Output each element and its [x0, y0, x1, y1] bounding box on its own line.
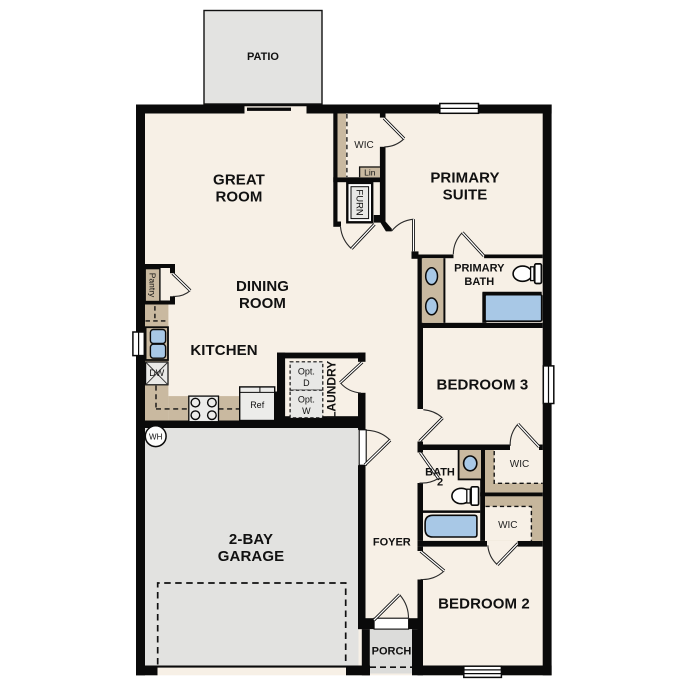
svg-text:Ref: Ref [250, 400, 265, 410]
svg-text:WIC: WIC [510, 459, 529, 470]
svg-text:2-BAY: 2-BAY [229, 531, 273, 548]
svg-text:Pantry: Pantry [148, 273, 158, 298]
svg-text:LAUNDRY: LAUNDRY [325, 361, 339, 419]
svg-text:PATIO: PATIO [247, 51, 279, 63]
svg-text:WIC: WIC [498, 520, 517, 531]
svg-text:FURN: FURN [353, 189, 364, 216]
svg-text:BEDROOM 3: BEDROOM 3 [437, 376, 529, 393]
svg-text:Opt.: Opt. [298, 367, 315, 377]
svg-text:SUITE: SUITE [443, 187, 488, 204]
svg-text:PORCH: PORCH [372, 645, 412, 657]
svg-text:ROOM: ROOM [215, 189, 262, 206]
svg-text:DW: DW [149, 368, 164, 378]
svg-text:WIC: WIC [354, 140, 373, 151]
svg-text:GARAGE: GARAGE [218, 548, 284, 565]
svg-text:FOYER: FOYER [373, 536, 411, 548]
svg-text:D: D [303, 378, 310, 388]
svg-text:Lin: Lin [364, 168, 376, 178]
svg-text:KITCHEN: KITCHEN [190, 342, 257, 359]
svg-text:WH: WH [149, 432, 163, 441]
svg-text:BATH: BATH [464, 276, 494, 288]
svg-text:DINING: DINING [236, 278, 289, 295]
svg-text:PRIMARY: PRIMARY [454, 263, 505, 275]
svg-text:W: W [302, 406, 311, 416]
svg-text:ROOM: ROOM [239, 295, 286, 312]
svg-text:GREAT: GREAT [213, 172, 265, 189]
svg-text:BEDROOM 2: BEDROOM 2 [438, 596, 530, 613]
svg-text:2: 2 [437, 477, 443, 489]
svg-text:PRIMARY: PRIMARY [430, 170, 499, 187]
svg-text:Opt.: Opt. [298, 395, 315, 405]
